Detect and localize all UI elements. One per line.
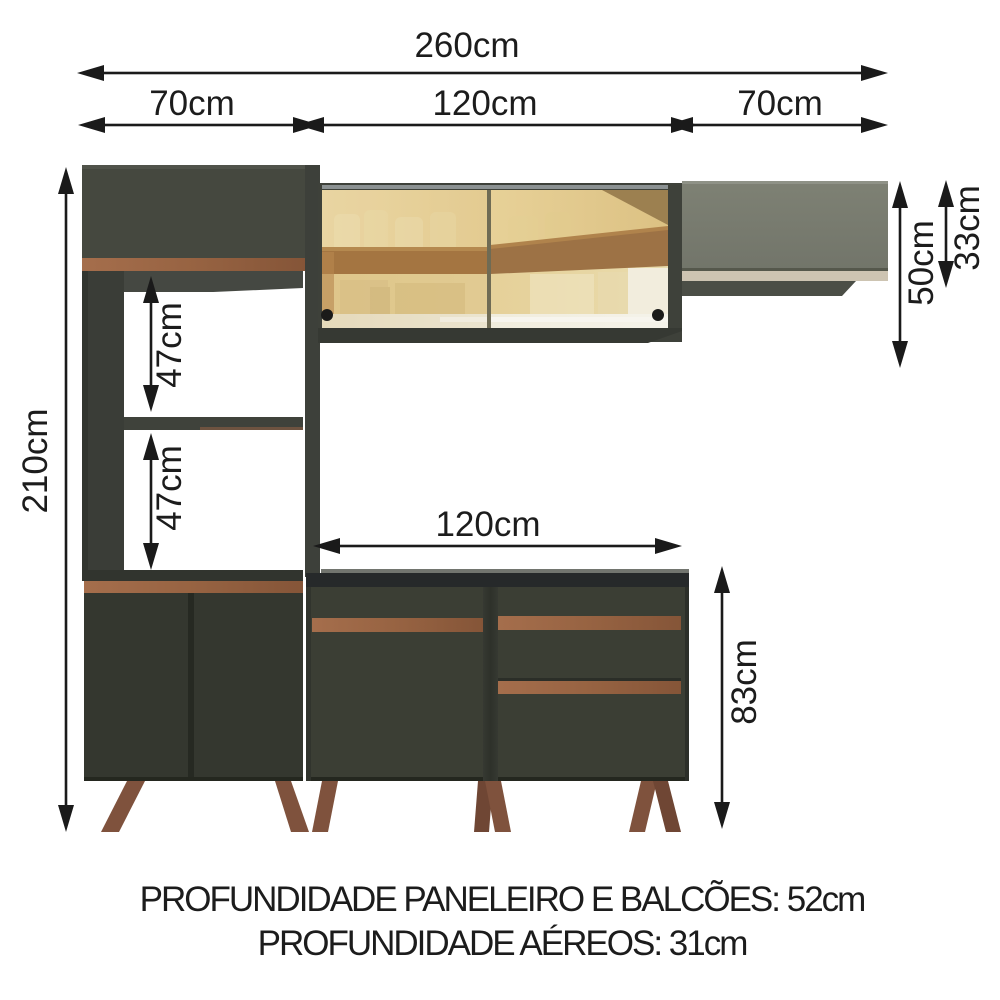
svg-text:210cm: 210cm <box>16 408 55 513</box>
svg-text:33cm: 33cm <box>948 185 987 271</box>
svg-text:70cm: 70cm <box>149 84 235 123</box>
svg-text:70cm: 70cm <box>737 84 823 123</box>
svg-text:120cm: 120cm <box>432 84 537 123</box>
svg-text:50cm: 50cm <box>902 220 941 306</box>
svg-text:PROFUNDIDADE PANELEIRO E BALCÕ: PROFUNDIDADE PANELEIRO E BALCÕES: 52cm <box>140 879 865 919</box>
svg-text:120cm: 120cm <box>435 505 540 544</box>
svg-text:PROFUNDIDADE AÉREOS: 31cm: PROFUNDIDADE AÉREOS: 31cm <box>258 924 747 963</box>
svg-text:47cm: 47cm <box>150 302 189 388</box>
svg-text:83cm: 83cm <box>725 639 764 725</box>
svg-text:47cm: 47cm <box>150 445 189 531</box>
svg-text:260cm: 260cm <box>414 26 519 65</box>
